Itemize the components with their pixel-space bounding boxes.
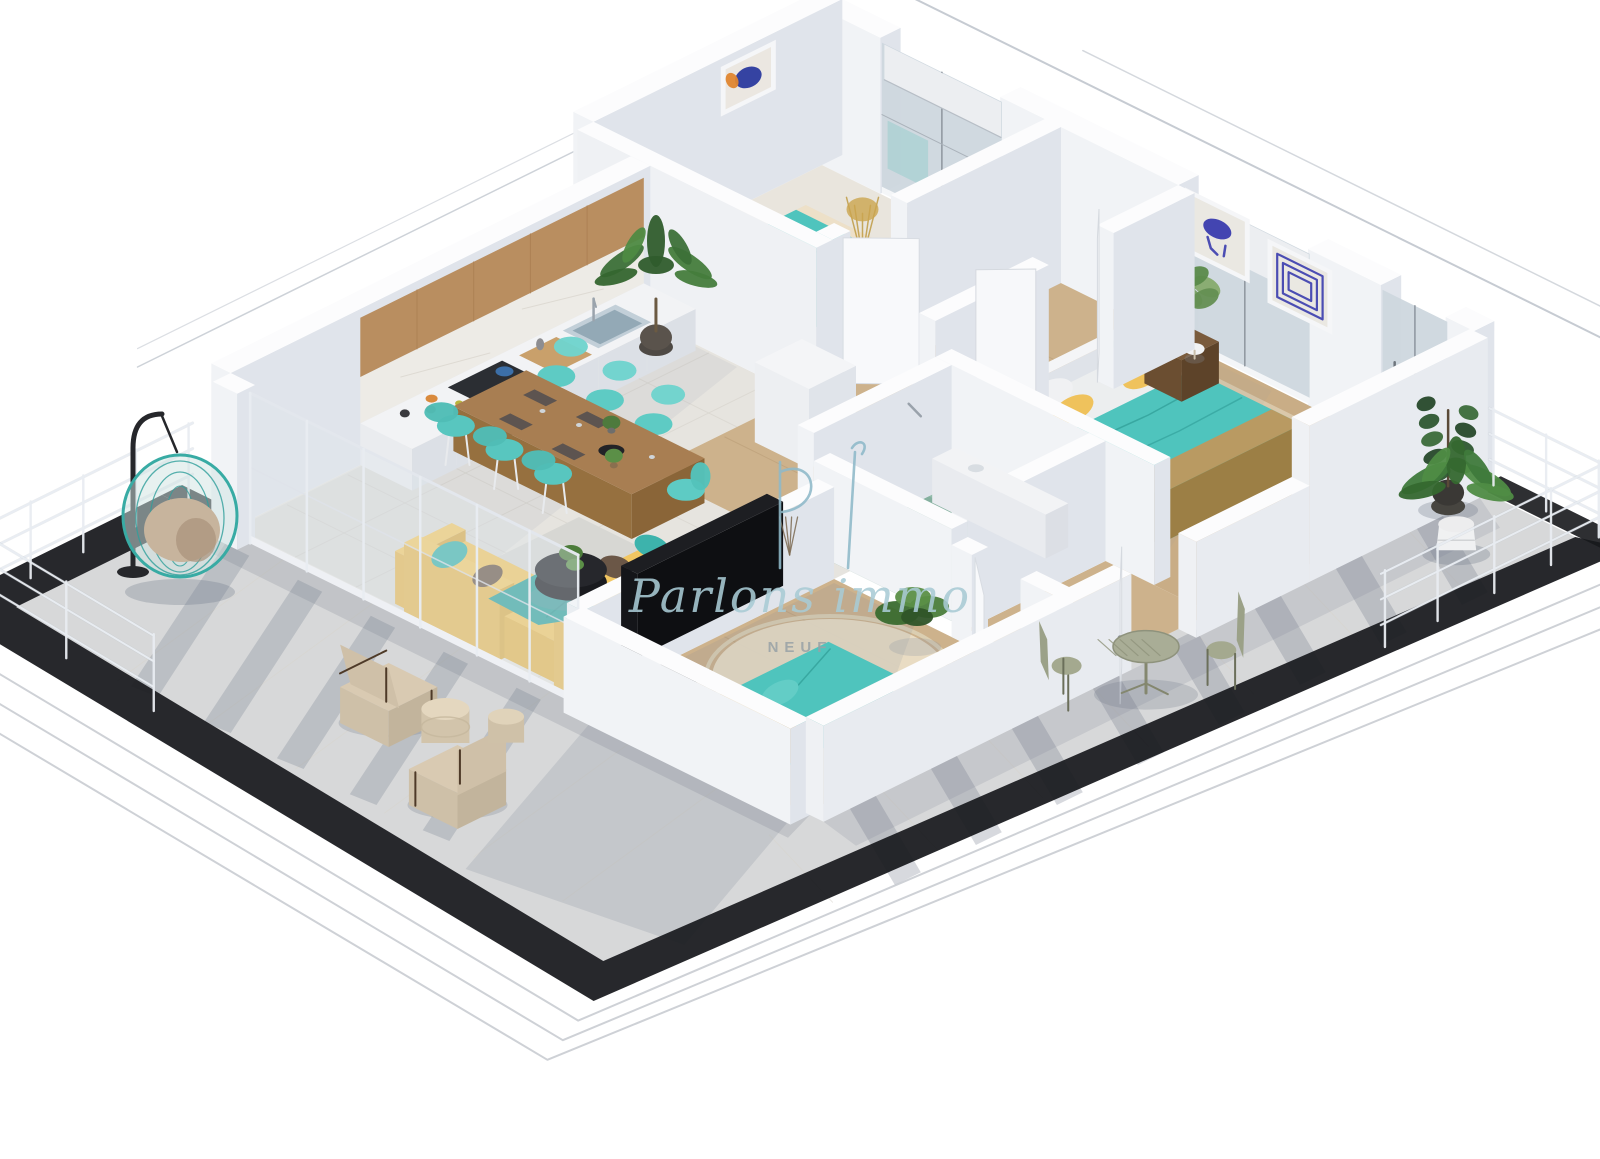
- floorplan-3d-render: Parlons immo NEUF: [0, 0, 1600, 1159]
- render-layer: [0, 0, 1600, 1060]
- brand-label: NEUF: [768, 639, 833, 656]
- brand-script: Parlons immo: [628, 569, 971, 623]
- floorplan-figure: Parlons immo NEUF: [0, 0, 1600, 1159]
